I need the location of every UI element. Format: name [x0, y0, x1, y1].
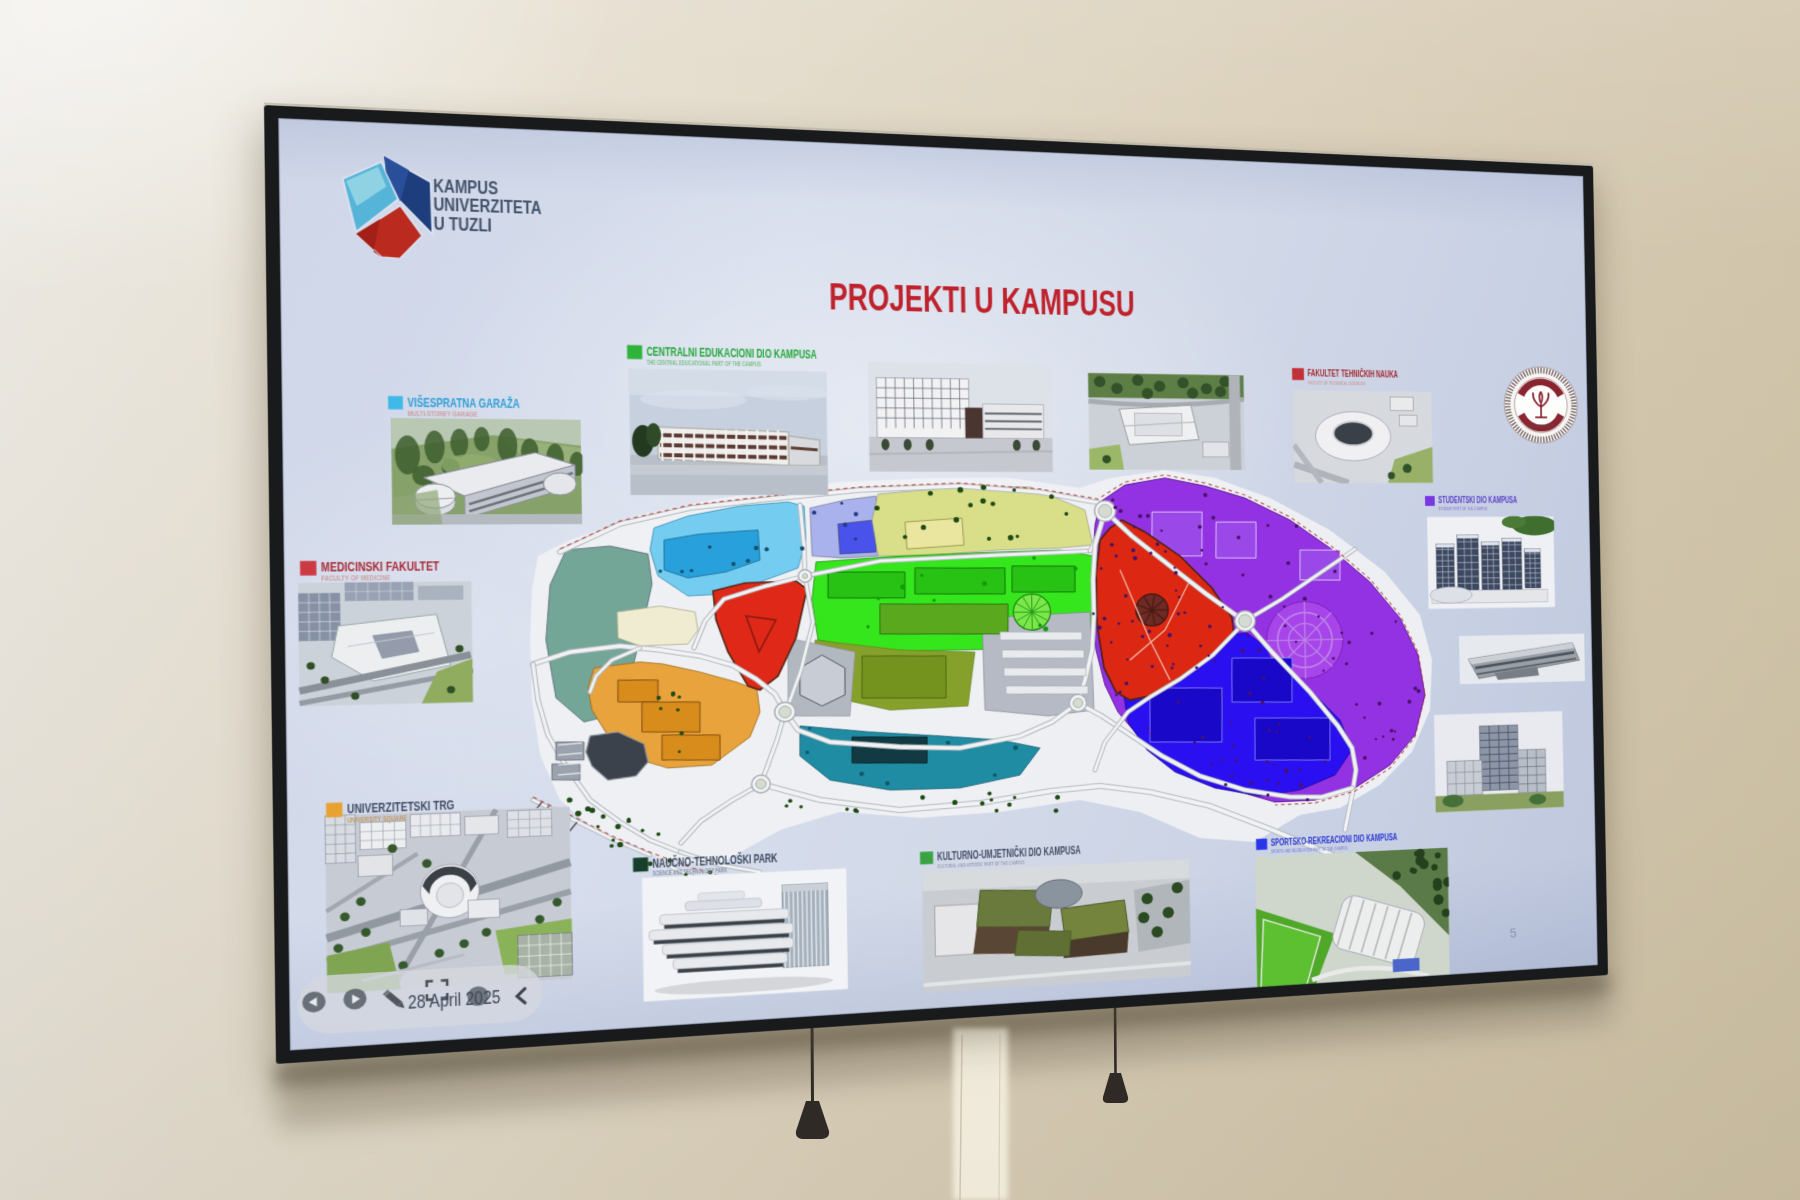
svg-text:FACULTY OF TECHNICAL SCIENCES: FACULTY OF TECHNICAL SCIENCES — [1308, 380, 1366, 387]
svg-text:THE CENTRAL EDUCATIONAL PART O: THE CENTRAL EDUCATIONAL PART OF THE CAMP… — [647, 358, 761, 368]
svg-text:STUDENT PART OF THE CAMPUS: STUDENT PART OF THE CAMPUS — [1438, 506, 1487, 512]
svg-text:PROJEKTI U KAMPUSU: PROJEKTI U KAMPUSU — [829, 277, 1135, 325]
svg-text:U TUZLI: U TUZLI — [433, 214, 492, 236]
svg-text:FAKULTET TEHNIČKIH NAUKA: FAKULTET TEHNIČKIH NAUKA — [1307, 367, 1398, 381]
svg-text:STUDENTSKI DIO KAMPUSA: STUDENTSKI DIO KAMPUSA — [1438, 495, 1517, 506]
svg-text:MCMLXXVI: MCMLXXVI — [1528, 424, 1555, 430]
svg-text:5: 5 — [1510, 927, 1517, 941]
svg-text:FACULTY OF MEDICINE: FACULTY OF MEDICINE — [321, 574, 390, 583]
svg-text:MULTI-STOREY GARAGE: MULTI-STOREY GARAGE — [408, 409, 478, 418]
